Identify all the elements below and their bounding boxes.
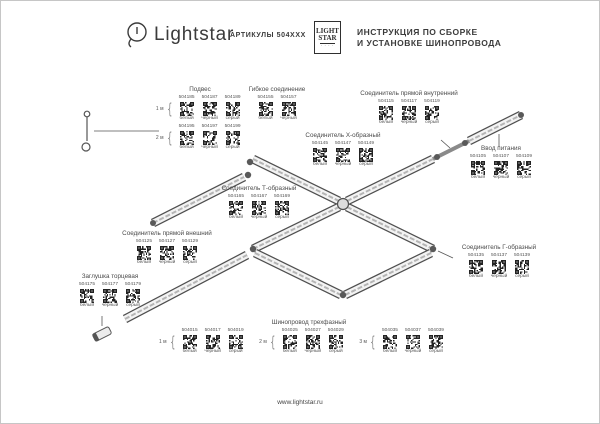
qr-item: 504155белый xyxy=(254,95,277,122)
qr-row: 504175белый504177черный504179серый xyxy=(76,282,145,309)
group-l-connector: Соединитель Г-образный 504135белый504137… xyxy=(451,244,547,280)
length-label: 2 м xyxy=(156,135,164,141)
qr-item: 504149серый xyxy=(355,141,378,168)
qr-row: 504135белый504137черный504139серый xyxy=(465,253,534,280)
qr-item: 504017черный xyxy=(201,328,224,355)
color-label: черный xyxy=(198,145,221,151)
qr-code xyxy=(425,106,439,120)
article-number: 504119 xyxy=(421,99,444,105)
qr-item: 504029серый xyxy=(324,328,347,355)
article-number: 504027 xyxy=(301,328,324,334)
qr-code xyxy=(306,335,320,349)
qr-item: 504187черный xyxy=(198,95,221,122)
article-number: 504037 xyxy=(401,328,424,334)
article-number: 504129 xyxy=(179,239,202,245)
qr-code xyxy=(259,102,273,116)
article-number: 504117 xyxy=(398,99,421,105)
qr-code xyxy=(406,335,420,349)
qr-code xyxy=(180,102,194,116)
qr-item: 504199серый xyxy=(221,124,244,151)
qr-code xyxy=(469,260,483,274)
article-number: 504135 xyxy=(465,253,488,259)
qr-code xyxy=(183,335,197,349)
qr-code xyxy=(203,131,217,145)
article-number: 504149 xyxy=(355,141,378,147)
group-title: Соединитель Х-образный xyxy=(297,132,389,139)
group-power-input: Ввод питания 504105белый504107черный5041… xyxy=(463,145,539,181)
color-label: белый xyxy=(178,349,201,355)
color-label: серый xyxy=(179,260,202,266)
color-label: белый xyxy=(76,303,99,309)
brace: { xyxy=(270,337,275,347)
qr-code xyxy=(515,260,529,274)
article-number: 504187 xyxy=(198,95,221,101)
color-label: серый xyxy=(424,349,447,355)
color-label: серый xyxy=(122,303,145,309)
qr-item: 504147черный xyxy=(332,141,355,168)
qr-row: 2 м{504025белый504027черный504029серый xyxy=(259,328,347,355)
brace: { xyxy=(167,104,172,114)
group-title: Ввод питания xyxy=(463,145,539,152)
qr-row: 504125белый504127черный504129серый xyxy=(133,239,202,266)
qr-code xyxy=(203,102,217,116)
color-label: серый xyxy=(224,349,247,355)
qr-code xyxy=(275,201,289,215)
color-label: белый xyxy=(175,116,198,122)
color-label: белый xyxy=(309,162,332,168)
group-x-connector: Соединитель Х-образный 504145белый504147… xyxy=(297,132,389,168)
article-number: 504165 xyxy=(225,194,248,200)
color-label: серый xyxy=(511,274,534,280)
qr-item: 504019серый xyxy=(224,328,247,355)
color-label: белый xyxy=(465,274,488,280)
article-number: 504017 xyxy=(201,328,224,334)
color-label: белый xyxy=(254,116,277,122)
qr-code xyxy=(229,201,243,215)
qr-code xyxy=(180,131,194,145)
article-number: 504035 xyxy=(378,328,401,334)
color-label: черный xyxy=(301,349,324,355)
qr-code xyxy=(126,289,140,303)
qr-item: 504169серый xyxy=(271,194,294,221)
qr-item: 504127черный xyxy=(156,239,179,266)
qr-code xyxy=(229,335,243,349)
article-number: 504137 xyxy=(488,253,511,259)
end-cap-icon xyxy=(92,326,112,341)
article-number: 504169 xyxy=(271,194,294,200)
qr-row: 504115белый504117черный504119серый xyxy=(375,99,444,126)
color-label: черный xyxy=(277,116,300,122)
qr-code xyxy=(471,161,485,175)
qr-code xyxy=(402,106,416,120)
color-label: серый xyxy=(421,120,444,126)
article-number: 504175 xyxy=(76,282,99,288)
qr-code xyxy=(183,246,197,260)
qr-item: 504117черный xyxy=(398,99,421,126)
article-number: 504177 xyxy=(99,282,122,288)
qr-row: 2 м{504195белый504197черный504199серый xyxy=(156,124,244,151)
qr-item: 504139серый xyxy=(511,253,534,280)
article-number: 504157 xyxy=(277,95,300,101)
qr-code xyxy=(252,201,266,215)
length-label: 3 м xyxy=(359,339,367,345)
article-number: 504039 xyxy=(424,328,447,334)
article-number: 504019 xyxy=(224,328,247,334)
color-label: белый xyxy=(225,215,248,221)
article-number: 504107 xyxy=(490,154,513,160)
article-number: 504179 xyxy=(122,282,145,288)
qr-code xyxy=(383,335,397,349)
qr-item: 504129серый xyxy=(179,239,202,266)
color-label: белый xyxy=(378,349,401,355)
qr-code xyxy=(517,161,531,175)
article-number: 504139 xyxy=(511,253,534,259)
color-label: черный xyxy=(401,349,424,355)
color-label: белый xyxy=(278,349,301,355)
article-number: 504125 xyxy=(133,239,156,245)
qr-row: 504105белый504107черный504109серый xyxy=(467,154,536,181)
length-label: 1 м xyxy=(156,106,164,112)
brace: { xyxy=(370,337,375,347)
article-number: 504029 xyxy=(324,328,347,334)
color-label: черный xyxy=(99,303,122,309)
article-number: 504105 xyxy=(467,154,490,160)
color-label: черный xyxy=(248,215,271,221)
qr-row: 504165белый504167черный504169серый xyxy=(225,194,294,221)
qr-row: 504145белый504147черный504149серый xyxy=(309,141,378,168)
group-title: Гибкое соединение xyxy=(229,86,325,93)
group-title: Соединитель Г-образный xyxy=(451,244,547,251)
qr-code xyxy=(137,246,151,260)
qr-row: 504155белый504157черный xyxy=(254,95,300,122)
qr-item: 504039серый xyxy=(424,328,447,355)
qr-item: 504035белый xyxy=(378,328,401,355)
color-label: серый xyxy=(355,162,378,168)
article-number: 504025 xyxy=(278,328,301,334)
color-label: черный xyxy=(490,175,513,181)
group-title: Соединитель Т-образный xyxy=(211,185,307,192)
qr-item: 504137черный xyxy=(488,253,511,280)
brace: { xyxy=(170,337,175,347)
color-label: серый xyxy=(271,215,294,221)
brace: { xyxy=(167,133,172,143)
qr-code xyxy=(492,260,506,274)
color-label: черный xyxy=(201,349,224,355)
qr-item: 504105белый xyxy=(467,154,490,181)
instruction-sheet: Lightstar АРТИКУЛЫ 504XXX LIGHT STAR · ·… xyxy=(0,0,600,424)
qr-code xyxy=(103,289,117,303)
qr-item: 504177черный xyxy=(99,282,122,309)
qr-item: 504197черный xyxy=(198,124,221,151)
qr-item: 504175белый xyxy=(76,282,99,309)
group-flexible-connector: Гибкое соединение 504155белый504157черны… xyxy=(229,86,325,122)
color-label: черный xyxy=(156,260,179,266)
qr-code xyxy=(379,106,393,120)
color-label: черный xyxy=(398,120,421,126)
color-label: серый xyxy=(324,349,347,355)
qr-item: 504119серый xyxy=(421,99,444,126)
qr-code xyxy=(359,148,373,162)
color-label: черный xyxy=(488,274,511,280)
qr-item: 504167черный xyxy=(248,194,271,221)
qr-item: 504195белый xyxy=(175,124,198,151)
group-title: Соединитель прямой внутренний xyxy=(353,90,465,97)
qr-item: 504025белый xyxy=(278,328,301,355)
qr-code xyxy=(336,148,350,162)
article-number: 504167 xyxy=(248,194,271,200)
article-number: 504155 xyxy=(254,95,277,101)
x-junction-hub xyxy=(338,199,349,210)
qr-item: 504109серый xyxy=(513,154,536,181)
group-title: Соединитель прямой внешний xyxy=(116,230,218,237)
qr-code xyxy=(313,148,327,162)
qr-item: 504037черный xyxy=(401,328,424,355)
article-number: 504195 xyxy=(175,124,198,130)
color-label: белый xyxy=(133,260,156,266)
color-label: белый xyxy=(375,120,398,126)
color-label: серый xyxy=(221,145,244,151)
qr-item: 504179серый xyxy=(122,282,145,309)
qr-item: 504135белый xyxy=(465,253,488,280)
length-label: 1 м xyxy=(159,339,167,345)
qr-item: 504185белый xyxy=(175,95,198,122)
group-title: Заглушка торцевая xyxy=(69,273,151,280)
qr-code xyxy=(329,335,343,349)
article-number: 504185 xyxy=(175,95,198,101)
article-number: 504147 xyxy=(332,141,355,147)
qr-code xyxy=(226,131,240,145)
article-number: 504145 xyxy=(309,141,332,147)
qr-code xyxy=(283,335,297,349)
qr-code xyxy=(494,161,508,175)
color-label: белый xyxy=(175,145,198,151)
qr-code xyxy=(206,335,220,349)
group-title: Шинопровод трехфазный xyxy=(159,319,459,326)
color-label: черный xyxy=(332,162,355,168)
color-label: белый xyxy=(467,175,490,181)
qr-row: 1 м{504015белый504017черный504019серый xyxy=(159,328,247,355)
length-label: 2 м xyxy=(259,339,267,345)
qr-item: 504107черный xyxy=(490,154,513,181)
article-number: 504199 xyxy=(221,124,244,130)
color-label: серый xyxy=(513,175,536,181)
article-number: 504197 xyxy=(198,124,221,130)
qr-item: 504145белый xyxy=(309,141,332,168)
group-t-connector: Соединитель Т-образный 504165белый504167… xyxy=(211,185,307,221)
article-number: 504109 xyxy=(513,154,536,160)
qr-code xyxy=(160,246,174,260)
article-number: 504115 xyxy=(375,99,398,105)
article-number: 504127 xyxy=(156,239,179,245)
qr-item: 504157черный xyxy=(277,95,300,122)
group-track-three-phase: Шинопровод трехфазный 1 м{504015белый504… xyxy=(159,319,459,355)
qr-item: 504027черный xyxy=(301,328,324,355)
qr-code xyxy=(282,102,296,116)
qr-item: 504165белый xyxy=(225,194,248,221)
hanger-icon xyxy=(82,111,90,151)
article-number: 504015 xyxy=(178,328,201,334)
group-end-cap: Заглушка торцевая 504175белый504177черны… xyxy=(69,273,151,309)
qr-item: 504115белый xyxy=(375,99,398,126)
qr-code xyxy=(80,289,94,303)
group-straight-connector-inner: Соединитель прямой внутренний 504115белы… xyxy=(353,90,465,126)
qr-code xyxy=(429,335,443,349)
color-label: черный xyxy=(198,116,221,122)
group-straight-connector-outer: Соединитель прямой внешний 504125белый50… xyxy=(116,230,218,266)
qr-item: 504015белый xyxy=(178,328,201,355)
qr-item: 504125белый xyxy=(133,239,156,266)
qr-row: 3 м{504035белый504037черный504039серый xyxy=(359,328,447,355)
